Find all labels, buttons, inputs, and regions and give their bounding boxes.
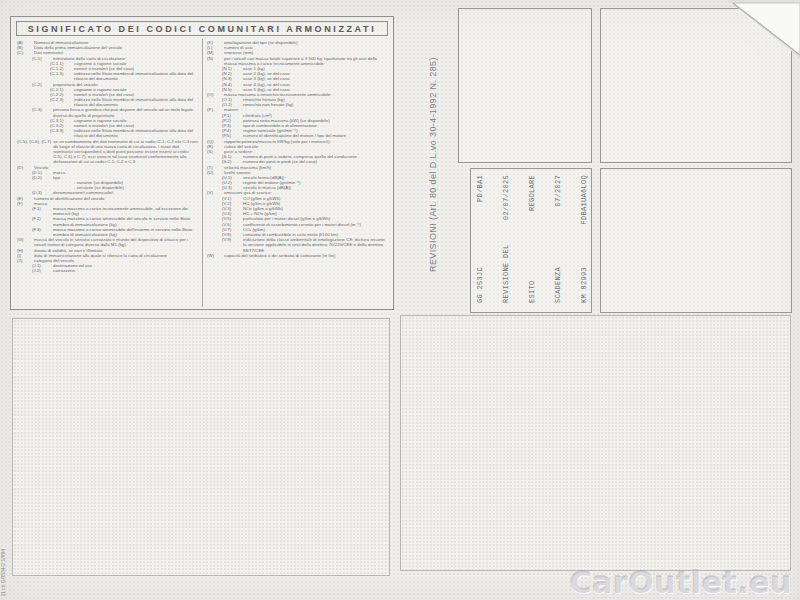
legend-entry: (F.1) massa massima a carico tecnicament… [32,206,199,216]
blank-stamp-area-left [12,318,390,576]
legend-entry-code: (F.3) [32,227,53,237]
legend-entry: (V.9) indicazione della classe ambiental… [222,237,385,253]
legend-entry-text: persona fisica o giuridica che può dispo… [53,107,199,117]
legend-entry-text: indirizzo nello Stato membro di immatric… [74,71,199,81]
legend-entry: (W) capacità del serbatoio o dei serbato… [207,253,385,258]
stamp-line: KM 82993 FDBA1UA6LOQ [580,175,588,303]
legend-entry: (C.3.3) indirizzo nello Stato membro di … [50,128,199,138]
legend-entry-code: (F.1) [32,206,53,216]
legend-entry-text: massa massima a carico ammissibile dell'… [53,227,199,237]
legend-column-left: (A) Numero di immatricolazione (B) Data … [16,39,202,307]
legend-entry-code: (G) [17,237,34,247]
stamp-line: GG 253JC PD/BA1 [476,175,484,303]
stamp-line: ESITO REGOLARE [528,175,536,303]
legend-entry-text: carrozzeria [53,268,199,273]
stamp-line-label: GG 253JC [476,267,484,303]
legend-entry: (C.5), (C.6), (C.7) se un cambiamento de… [17,139,199,165]
legend-entry-text: per i veicoli con massa totale superiore… [224,56,385,66]
blank-stamp-area-right [400,315,791,571]
revisioni-heading: REVISIONI (Art. 80 del D.L.vo 30-4-1992 … [428,30,445,300]
legend-entry-code: (C.1.3) [50,71,74,81]
legend-columns: (A) Numero di immatricolazione (B) Data … [16,39,388,307]
legend-entry: (C.3) persona fisica o giuridica che può… [32,107,199,117]
revision-stamp-text: GG 253JC PD/BA1 REVISIONE DEL 02/07/2025… [472,169,592,313]
stamp-line-value: REGOLARE [528,175,536,211]
stamp-line-value: 02/07/2025 [502,175,510,220]
legend-entry-code: (F.2) [32,216,53,226]
legend-entry: (N) per i veicoli con massa totale super… [207,56,385,66]
stamp-line: REVISIONE DEL 02/07/2025 [502,175,510,303]
legend-column-right: (K) omologazione del tipo (se disponibil… [202,39,388,307]
legend-entry-code: (W) [207,253,224,258]
watermark: CarOutlet.eu [570,565,792,600]
stamp-box-top-left [458,8,592,163]
revision-stamp: GG 253JC PD/BA1 REVISIONE DEL 02/07/2025… [472,169,594,313]
legend-entry-text: massa del veicolo in servizio carrozzato… [34,237,199,247]
stamp-line-value: FDBA1UA6LOQ [580,175,588,225]
legend-entry: (G) massa del veicolo in servizio carroz… [17,237,199,247]
legend-entry-code: (N) [207,56,224,66]
stamp-box-bottom-right [600,168,792,313]
legend-entry: (C.1.3) indirizzo nello Stato membro di … [50,71,199,81]
legend-entry-code: (C.5), (C.6), (C.7) [17,139,53,165]
legend-entry-code: (C.2.3) [50,97,74,107]
legend-entry-code: (C.3.3) [50,128,74,138]
stamp-line-value: 07/2027 [554,175,562,207]
legend-entry: (F.2) massa massima a carico ammissibile… [32,216,199,226]
legend-entry: (F.3) massa massima a carico ammissibile… [32,227,199,237]
legend-entry-text: capacità del serbatoio o dei serbatoi di… [224,253,385,258]
legend-entry-code: (V.9) [222,237,243,253]
legend-entry-text: se un cambiamento dei dati nominativi di… [53,139,199,165]
stamp-line: SCADENZA 07/2027 [554,175,562,303]
stamp-line-label: REVISIONE DEL [502,244,510,303]
legend-entry-text: massa massima a carico tecnicamente ammi… [53,206,199,216]
legend-entry-text: indirizzo nello Stato membro di immatric… [74,128,199,138]
stamp-line-value: PD/BA1 [476,175,484,202]
legend-entry-code: (J.2) [32,268,53,273]
harmonized-codes-legend-box: SIGNIFICATO DEI CODICI COMUNITARI ARMONI… [10,16,394,310]
stamp-line-label: SCADENZA [554,267,562,303]
page-curl-icon [720,0,800,58]
scanned-document-page: { "document": { "legend": { "title": "SI… [0,0,800,600]
legend-title: SIGNIFICATO DEI CODICI COMUNITARI ARMONI… [16,21,388,36]
legend-entry: (C.2.3) indirizzo nello Stato membro di … [50,97,199,107]
legend-entry-code: (C.3) [32,107,53,117]
legend-entry-text: massa massima a carico ammissibile del v… [53,216,199,226]
print-code: 11 co GR534-2 1/994 [0,549,9,596]
legend-entry-text: indicazione della classe ambientale di o… [243,237,385,253]
legend-entry: (J.2) carrozzeria [32,268,199,273]
stamp-line-label: KM 82993 [580,267,588,303]
legend-entry-text: indirizzo nello Stato membro di immatric… [74,97,199,107]
stamp-line-label: ESITO [528,280,536,303]
